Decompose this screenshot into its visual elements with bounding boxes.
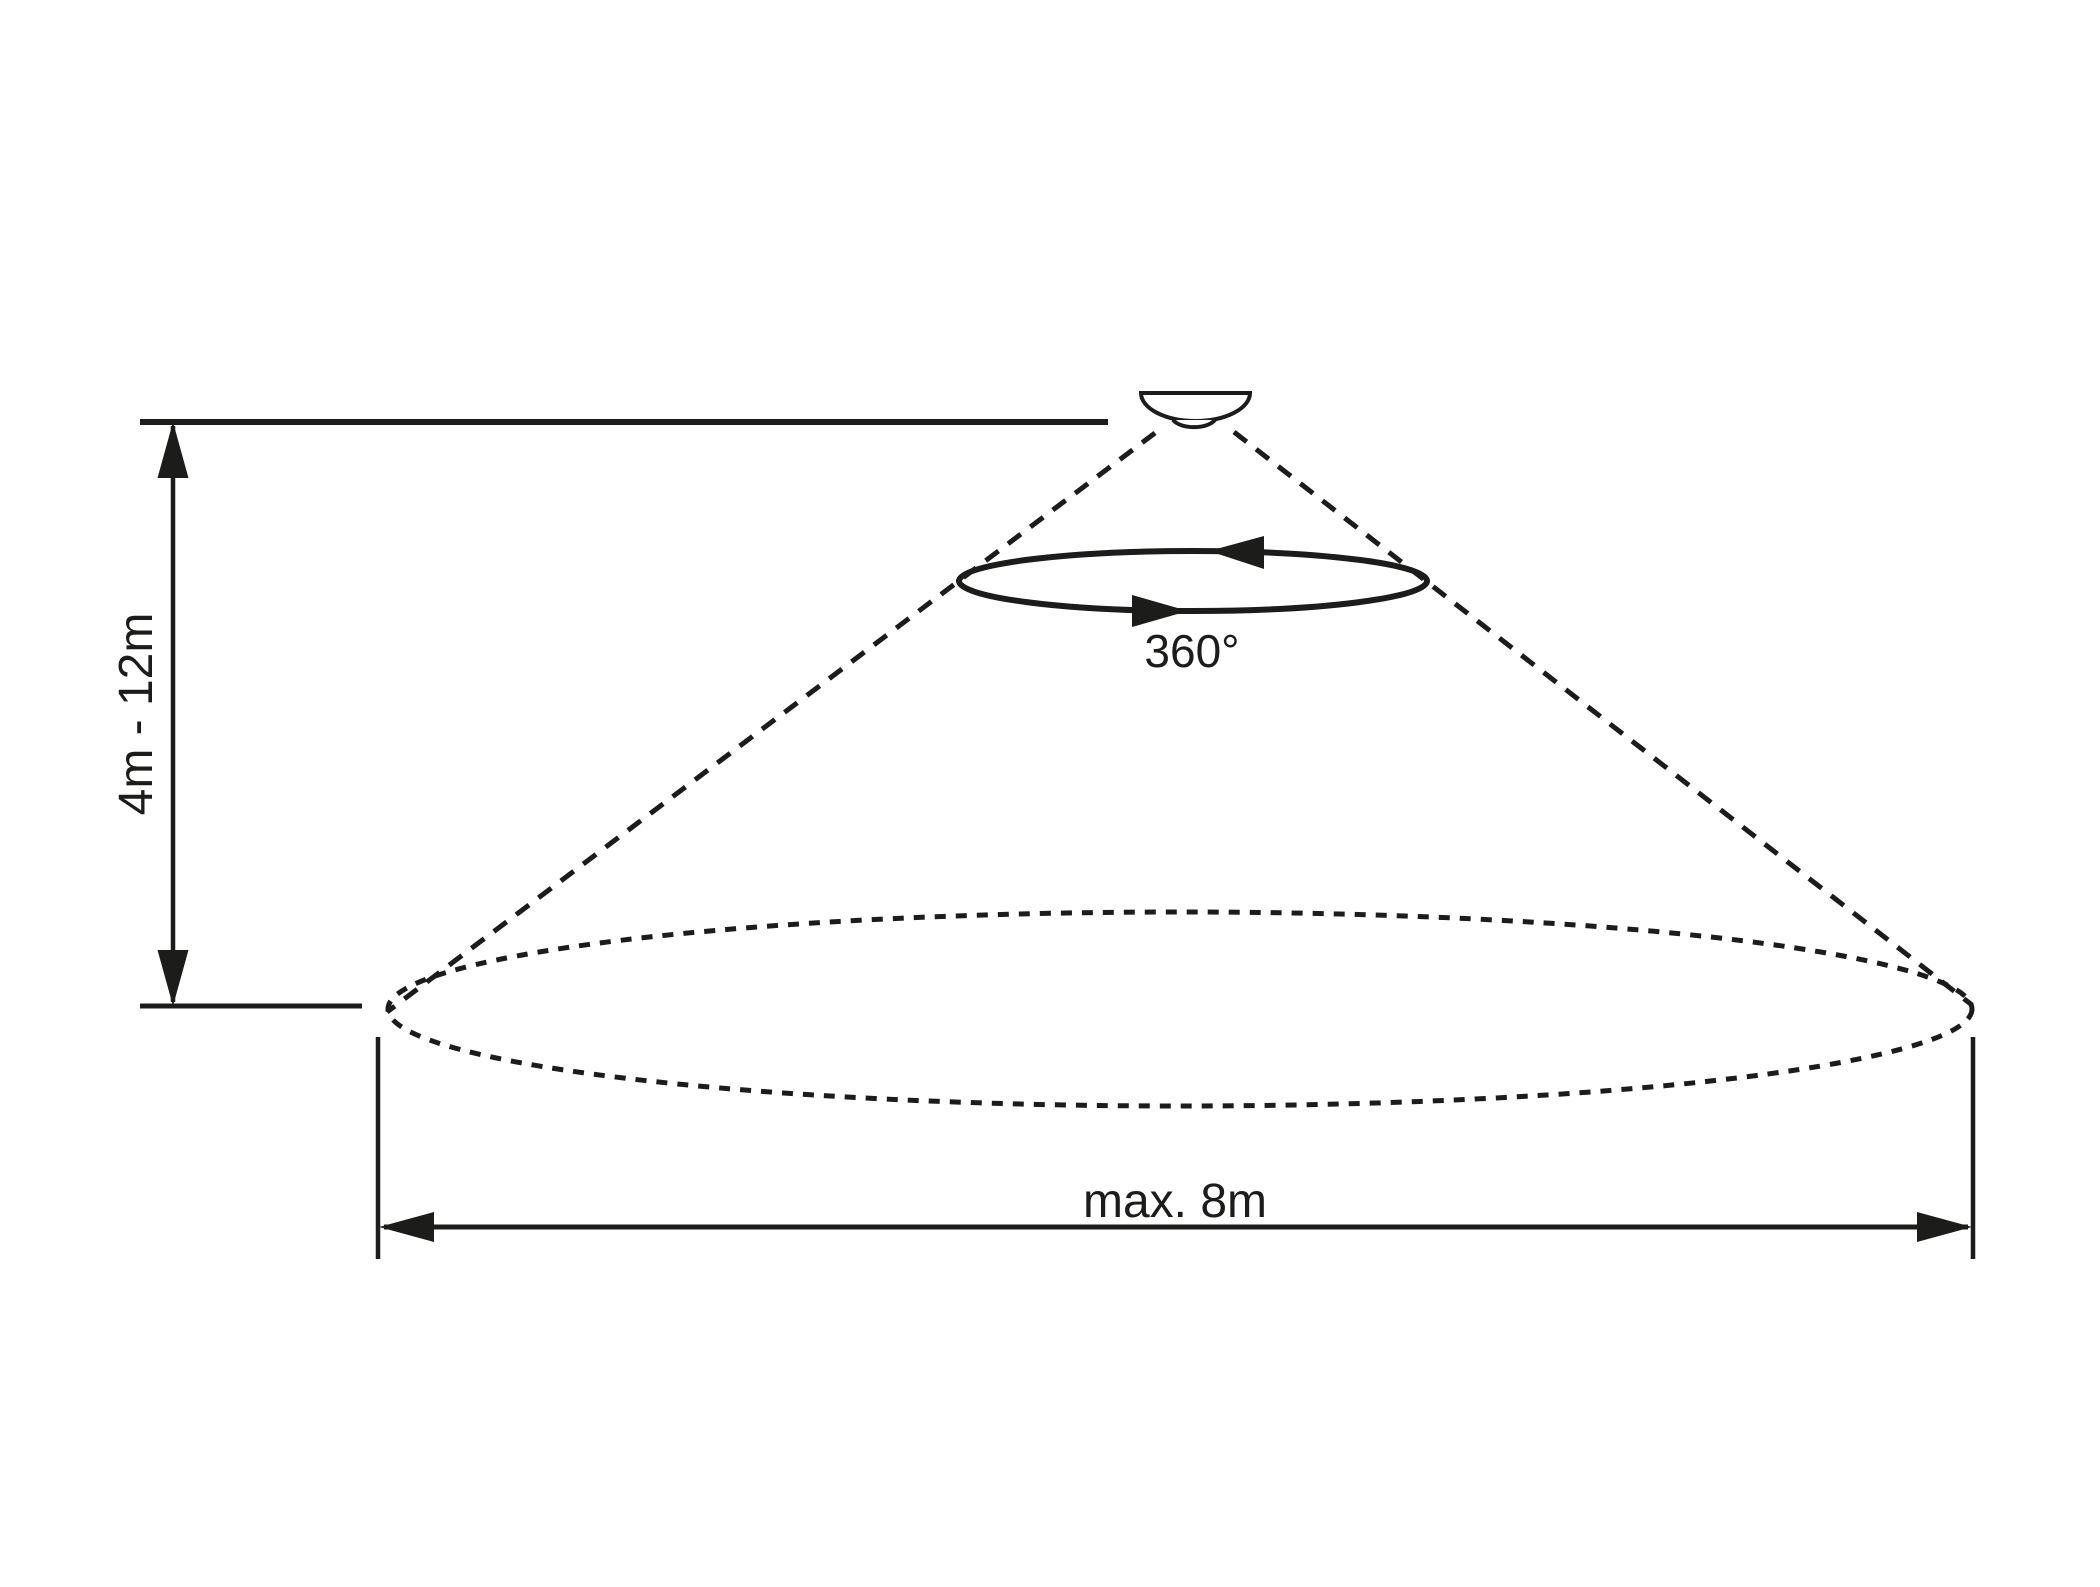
detection-cone: [387, 432, 1972, 1106]
sensor-lens: [1173, 420, 1215, 427]
diagram-canvas: 4m - 12m 360° max. 8m: [0, 0, 2100, 1587]
rotation-arrow-left-icon: [1209, 536, 1264, 569]
coverage-area-ellipse: [388, 912, 1972, 1106]
sensor-range-diagram: 4m - 12m 360° max. 8m: [0, 0, 2100, 1587]
diameter-arrow-left-icon: [379, 1212, 434, 1242]
height-arrow-down-icon: [158, 950, 189, 1006]
diameter-arrow-right-icon: [1917, 1212, 1972, 1242]
height-dimension: 4m - 12m: [110, 422, 189, 1006]
rotation-label: 360°: [1144, 625, 1239, 677]
sensor-dome: [1141, 393, 1250, 421]
rotation-indicator: 360°: [959, 536, 1427, 677]
rotation-ellipse: [959, 551, 1427, 611]
diameter-dimension: max. 8m: [378, 1037, 1973, 1259]
rotation-arrow-right-icon: [1132, 595, 1188, 627]
diameter-label: max. 8m: [1083, 1175, 1267, 1228]
cone-right-edge: [1234, 432, 1972, 1005]
height-arrow-up-icon: [158, 422, 189, 478]
height-label: 4m - 12m: [110, 613, 163, 816]
ceiling-sensor: [1141, 393, 1250, 427]
